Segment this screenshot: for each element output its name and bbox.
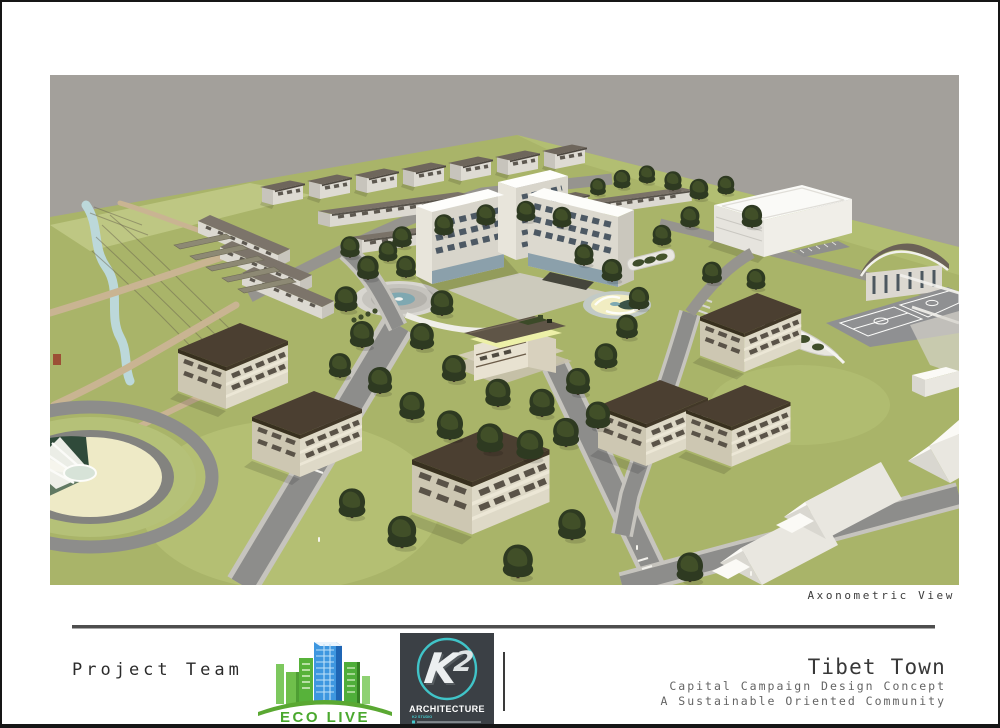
project-subtitle-2: A Sustainable Oriented Community (660, 694, 946, 709)
k2-contact-lines (412, 721, 481, 728)
site-render-graphic (50, 75, 959, 585)
k2-label: ARCHITECTURE (409, 704, 485, 714)
view-caption: Axonometric View (807, 589, 955, 602)
eco-live-logo: ECO LIVE CONSTRUCTION AND MANAGEMENT LLC (252, 632, 402, 728)
project-team-label: Project Team (72, 660, 243, 680)
small-red-structure (53, 354, 61, 365)
buildings-icon (276, 642, 370, 704)
eco-live-tagline: CONSTRUCTION AND MANAGEMENT LLC (259, 723, 391, 728)
project-subtitle-1: Capital Campaign Design Concept (660, 679, 946, 694)
k2-studio: K2 STUDIO (412, 715, 432, 719)
project-title: Tibet Town (660, 655, 946, 679)
presentation-board: Axonometric View Project Team (0, 0, 1000, 728)
footer-divider (72, 625, 935, 629)
axonometric-render (50, 75, 959, 585)
project-title-block: Tibet Town Capital Campaign Design Conce… (660, 655, 946, 709)
amphitheater (50, 407, 212, 547)
eco-live-logo-graphic: ECO LIVE CONSTRUCTION AND MANAGEMENT LLC (252, 632, 402, 728)
logo-separator-rule (503, 652, 505, 711)
k2-logo-graphic: K K 2 ARCHITECTURE K2 STUDIO (400, 633, 494, 728)
k2-logo: K K 2 ARCHITECTURE K2 STUDIO (400, 633, 494, 728)
